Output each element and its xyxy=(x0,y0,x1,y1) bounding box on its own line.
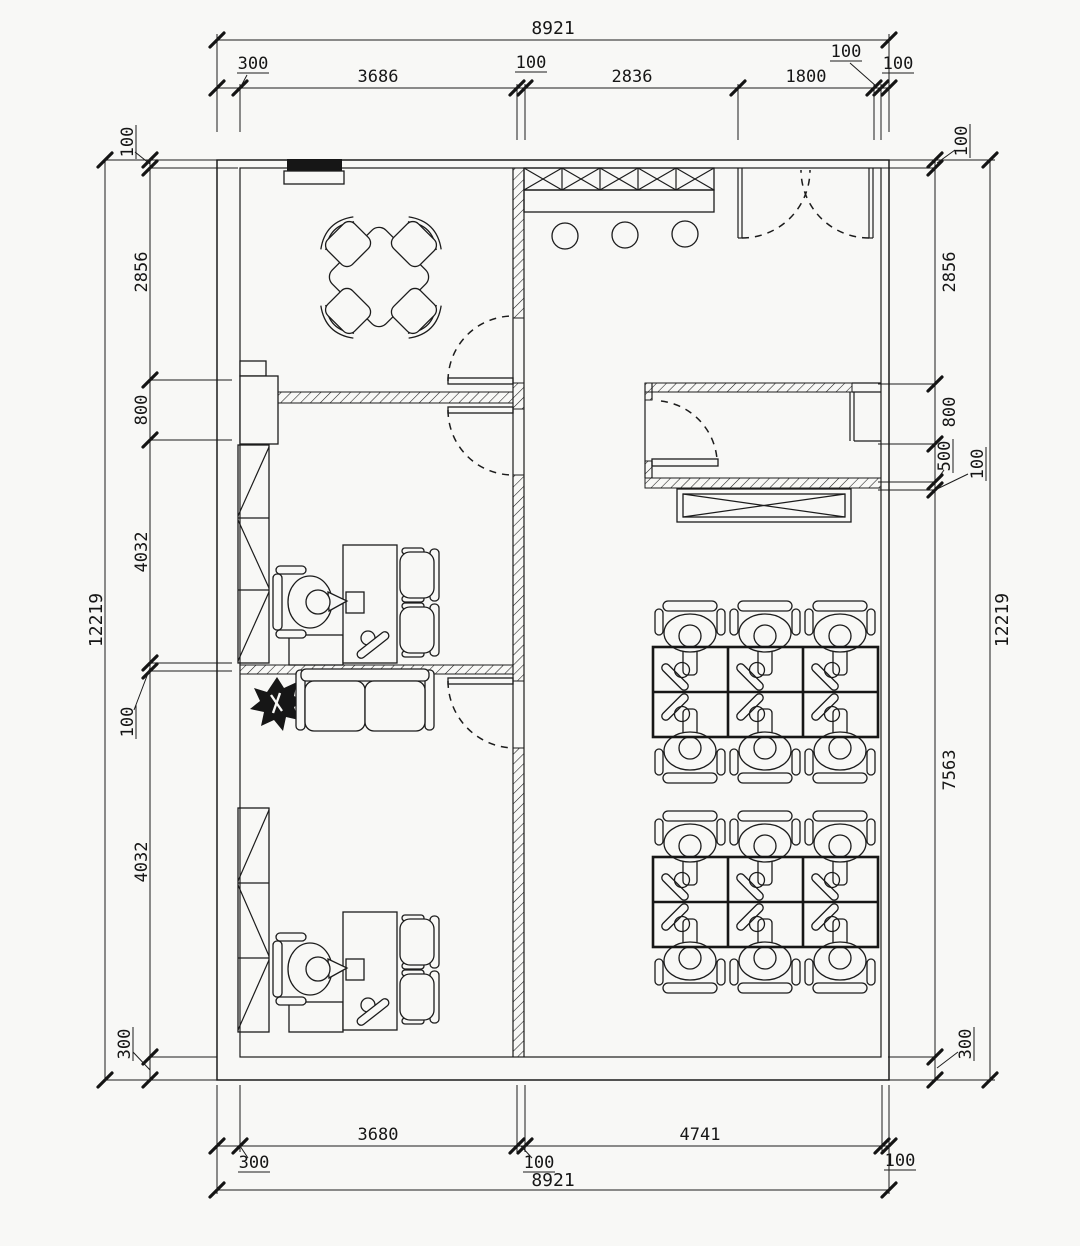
dim-top-300: 300 xyxy=(238,54,269,74)
workstation-cluster-top xyxy=(653,601,878,783)
dim-left-overall: 12219 xyxy=(86,593,107,647)
dim-right-500: 500 xyxy=(935,441,955,472)
floor-plan-svg: 8921 300 3686 100 2836 1800 100 100 3680… xyxy=(0,0,1080,1246)
floor-plan-page: 8921 300 3686 100 2836 1800 100 100 3680… xyxy=(0,0,1080,1246)
dim-left-4032b: 4032 xyxy=(132,842,152,883)
central-partition-wall xyxy=(513,168,524,1057)
dim-left-100a: 100 xyxy=(118,127,138,158)
dim-right-300: 300 xyxy=(956,1029,976,1060)
dim-bottom-100b: 100 xyxy=(885,1151,916,1171)
dim-left-100b: 100 xyxy=(118,707,138,738)
dim-top-2836: 2836 xyxy=(612,67,653,87)
wall-step xyxy=(240,361,266,376)
sofa xyxy=(296,669,434,731)
dim-bottom-300: 300 xyxy=(239,1153,270,1173)
dim-bottom-3680: 3680 xyxy=(358,1125,399,1145)
dim-left-4032a: 4032 xyxy=(132,532,152,573)
dim-bottom-4741: 4741 xyxy=(680,1125,721,1145)
dim-top-100c: 100 xyxy=(883,54,914,74)
dim-left-300: 300 xyxy=(115,1029,135,1060)
dim-right-2856: 2856 xyxy=(940,252,960,293)
wall-pier xyxy=(240,376,278,444)
dim-right-overall: 12219 xyxy=(992,593,1013,647)
dim-top-1800: 1800 xyxy=(786,67,827,87)
dim-right-7563: 7563 xyxy=(940,750,960,791)
paper xyxy=(0,0,1080,1246)
dim-bottom-overall: 8921 xyxy=(531,1170,574,1191)
dim-right-800: 800 xyxy=(940,397,960,428)
dim-top-100b: 100 xyxy=(831,42,862,62)
dim-left-2856: 2856 xyxy=(132,252,152,293)
dim-right-100b: 100 xyxy=(968,449,988,480)
dim-left-800: 800 xyxy=(132,395,152,426)
tv-unit xyxy=(287,159,342,171)
dim-right-100a: 100 xyxy=(952,126,972,157)
dim-top-3686: 3686 xyxy=(358,67,399,87)
dim-top-100a: 100 xyxy=(516,53,547,73)
workstation-cluster-bottom xyxy=(653,811,878,993)
dim-top-overall: 8921 xyxy=(531,18,574,39)
